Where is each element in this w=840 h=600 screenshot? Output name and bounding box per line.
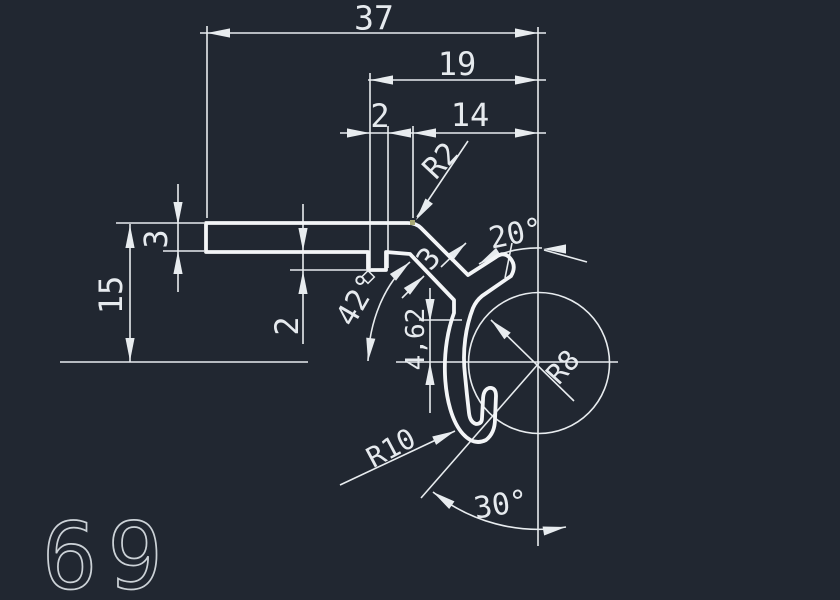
arrow-notch-right	[388, 128, 411, 137]
arrow-notch-left	[347, 128, 370, 137]
dim-label-right-width: 14	[451, 96, 490, 134]
arrow-3left-top	[173, 202, 182, 225]
arrow-19-right	[515, 75, 538, 84]
r2-grip-dot	[410, 220, 415, 225]
arrow-15-top	[125, 225, 134, 248]
dim-label-notch-width: 2	[370, 97, 389, 135]
dim-label-notch-depth: 2	[268, 316, 306, 335]
arrow-37-left	[207, 28, 230, 37]
arrow-3left-bottom	[173, 251, 182, 274]
dim-label-stem-angle: 42°	[329, 268, 386, 332]
dim-label-arm-angle: 20°	[486, 211, 546, 257]
arrow-r2	[412, 199, 433, 223]
dim-label-bottom-angle: 30°	[472, 483, 531, 526]
extrusion-profile-outline	[206, 223, 514, 442]
arrow-19-left	[370, 75, 393, 84]
dim-label-stem-thickness: 3	[410, 241, 448, 277]
arrow-14-left	[413, 128, 436, 137]
dimension-lines	[60, 26, 618, 546]
arrow-2low-bottom	[298, 271, 307, 294]
dim-label-center-offset: 4,62	[401, 308, 431, 371]
dim-label-overall-height: 15	[92, 276, 130, 315]
dim-label-hook-radius: R10	[361, 422, 421, 475]
arrow-r10	[432, 427, 457, 445]
dim-label-corner-radius: R2	[416, 136, 466, 186]
dim-label-upper-width: 19	[438, 45, 477, 83]
sheet-number: 69	[42, 503, 173, 600]
dim-label-strip-thickness: 3	[137, 229, 175, 248]
cad-viewport: 37 19 2 14 R2 20° 3 15 2 42° 3 4,62 R8 R…	[0, 0, 840, 600]
arrow-30-right	[543, 522, 567, 535]
dim-label-total-width: 37	[354, 0, 394, 38]
dim-label-circle-radius: R8	[539, 343, 586, 390]
arrow-15-bottom	[125, 338, 134, 361]
arrow-42-bottom	[363, 338, 375, 362]
arrow-14-right	[515, 128, 538, 137]
cad-drawing-canvas[interactable]: 37 19 2 14 R2 20° 3 15 2 42° 3 4,62 R8 R…	[0, 0, 840, 600]
arrow-37-right	[515, 28, 538, 37]
arrow-2low-top	[298, 228, 307, 251]
arrow-30-left	[430, 488, 454, 509]
